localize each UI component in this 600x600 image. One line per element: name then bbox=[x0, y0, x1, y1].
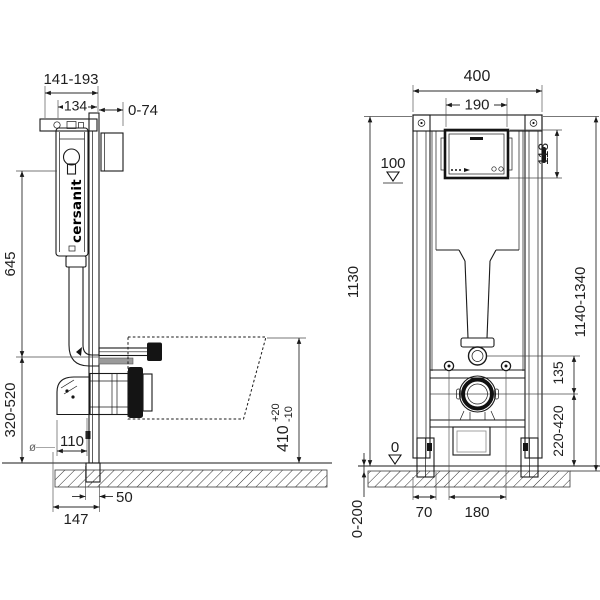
level-triangle-icon bbox=[389, 455, 401, 464]
svg-text:50: 50 bbox=[116, 489, 133, 506]
dim-wall-gap: 0-74 bbox=[99, 102, 158, 126]
svg-text:0-200: 0-200 bbox=[349, 500, 366, 538]
svg-text:141-193: 141-193 bbox=[43, 71, 98, 88]
svg-text:1130: 1130 bbox=[345, 266, 362, 298]
flush-valve-detail bbox=[64, 149, 80, 165]
lower-crossbar bbox=[427, 420, 528, 455]
svg-text:118: 118 bbox=[535, 143, 551, 166]
svg-text:135: 135 bbox=[550, 361, 566, 385]
brand-logo: cersanit bbox=[69, 179, 85, 243]
dim-bolt-spacing: 180 bbox=[449, 371, 506, 521]
svg-text:0: 0 bbox=[391, 439, 399, 456]
dim-drain-height-range: 220-420 bbox=[550, 394, 574, 466]
svg-text:110: 110 bbox=[60, 433, 84, 450]
dim-bowl-height: 410 +20 -10 bbox=[267, 338, 306, 463]
svg-text:+20: +20 bbox=[270, 403, 282, 422]
level-mark-100: 100 bbox=[380, 155, 405, 183]
wall-spacer-block bbox=[101, 133, 123, 171]
svg-text:645: 645 bbox=[2, 251, 19, 276]
front-view: 400 190 118 100 1130 bbox=[345, 68, 600, 538]
wall-bracket bbox=[40, 119, 97, 131]
svg-text:70: 70 bbox=[416, 504, 433, 521]
svg-text:220-420: 220-420 bbox=[550, 405, 566, 457]
dim-drain-diameter: 110 ø bbox=[29, 418, 87, 456]
flush-pipe-front bbox=[461, 261, 494, 365]
flow-arrow bbox=[76, 347, 82, 356]
top-crossbar bbox=[413, 115, 542, 131]
svg-text:410: 410 bbox=[275, 425, 292, 452]
svg-text:134: 134 bbox=[64, 98, 88, 114]
svg-text:-10: -10 bbox=[283, 406, 295, 422]
diameter-symbol: ø bbox=[29, 442, 36, 454]
dim-bracket-depth: 134 bbox=[58, 98, 97, 119]
svg-text:147: 147 bbox=[63, 511, 88, 528]
dim-flush-outlet-offset: 135 bbox=[487, 356, 580, 394]
drain-flange bbox=[128, 367, 143, 418]
svg-text:0-74: 0-74 bbox=[128, 102, 158, 119]
level-mark-0: 0 bbox=[389, 439, 401, 464]
flush-pipe-side bbox=[66, 256, 99, 366]
svg-text:190: 190 bbox=[464, 97, 489, 114]
side-view: cersanit bbox=[2, 71, 332, 528]
dim-access-panel-width: 190 bbox=[446, 97, 507, 128]
svg-text:320-520: 320-520 bbox=[2, 382, 19, 437]
dim-access-panel-height: 118 bbox=[510, 130, 562, 178]
flush-outlet bbox=[469, 347, 487, 365]
post-clip bbox=[86, 431, 91, 439]
level-triangle-icon bbox=[387, 172, 399, 181]
mounting-rod bbox=[99, 343, 162, 365]
svg-text:400: 400 bbox=[464, 68, 491, 85]
ground-hatch-side bbox=[55, 470, 327, 487]
svg-text:180: 180 bbox=[464, 504, 489, 521]
svg-text:100: 100 bbox=[380, 155, 405, 172]
cistern-side: cersanit bbox=[56, 128, 88, 256]
ground-hatch-front bbox=[368, 471, 570, 487]
svg-text:1140-1340: 1140-1340 bbox=[572, 267, 589, 338]
dim-outlet-height-range: 320-520 bbox=[2, 357, 22, 463]
rod-cap bbox=[147, 343, 162, 362]
access-panel bbox=[441, 130, 512, 178]
technical-drawing-canvas: cersanit bbox=[0, 0, 600, 600]
installation-frame-technical-drawing: cersanit bbox=[0, 0, 600, 600]
drain-connector bbox=[57, 367, 152, 418]
